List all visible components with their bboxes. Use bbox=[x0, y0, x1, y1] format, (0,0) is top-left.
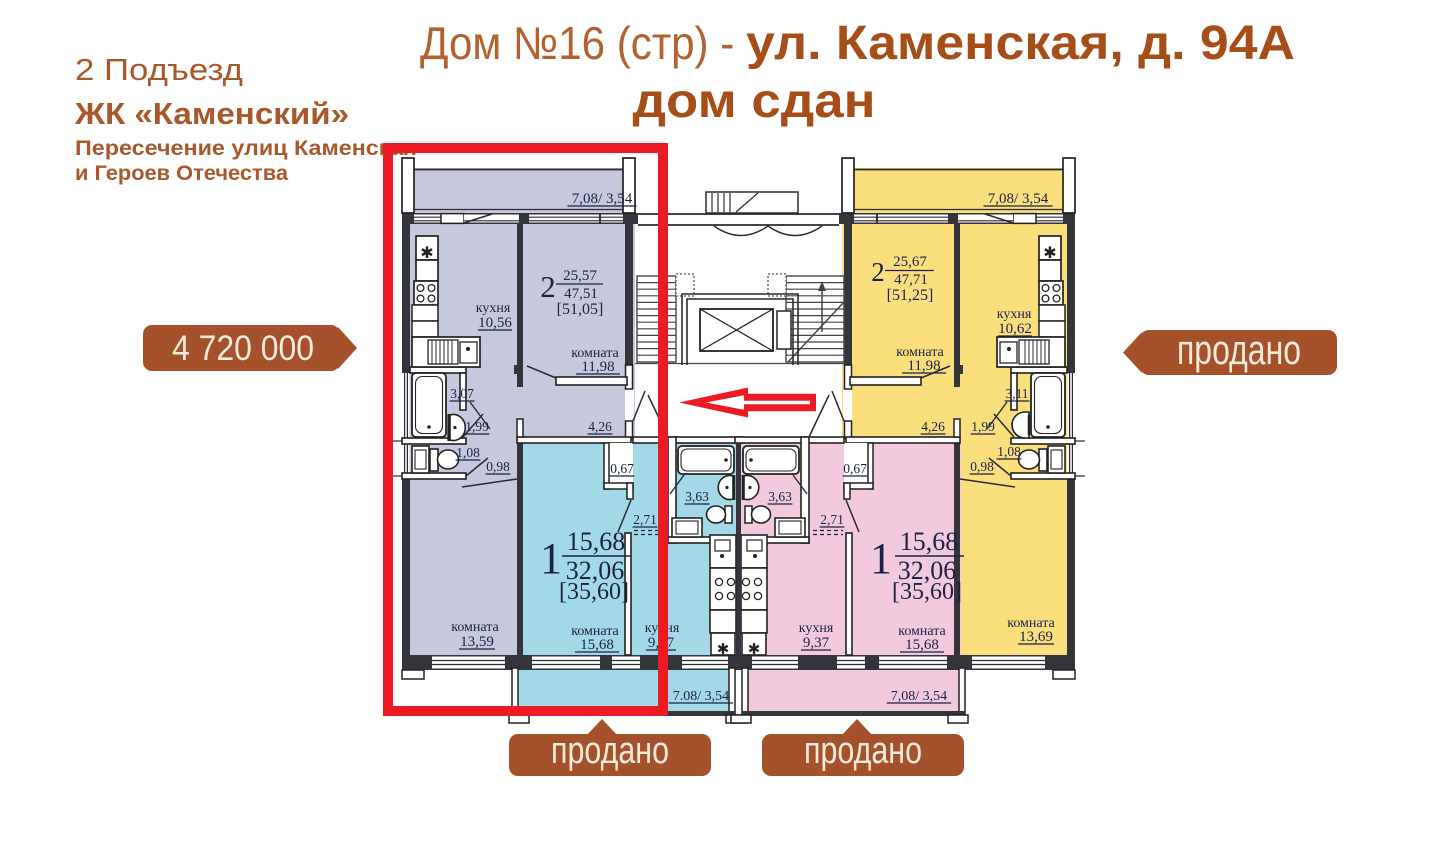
svg-text:ЖК «Каменский»: ЖК «Каменский» bbox=[74, 96, 349, 131]
svg-text:25,67: 25,67 bbox=[893, 254, 927, 270]
svg-text:10,62: 10,62 bbox=[998, 321, 1032, 337]
svg-text:кухня: кухня bbox=[476, 301, 511, 316]
svg-text:комната: комната bbox=[451, 620, 499, 635]
svg-text:продано: продано bbox=[1177, 326, 1301, 373]
svg-text:15,68: 15,68 bbox=[905, 637, 939, 653]
svg-text:дом сдан: дом сдан bbox=[633, 75, 876, 128]
svg-text:[35,60]: [35,60] bbox=[892, 579, 962, 605]
svg-text:✱: ✱ bbox=[748, 642, 761, 658]
svg-text:2,71: 2,71 bbox=[820, 512, 844, 527]
svg-text:11,98: 11,98 bbox=[581, 359, 614, 375]
svg-text:2,71: 2,71 bbox=[633, 512, 657, 527]
svg-text:47,71: 47,71 bbox=[894, 272, 928, 288]
svg-text:15,68: 15,68 bbox=[567, 527, 626, 556]
svg-text:7,08/ 3,54: 7,08/ 3,54 bbox=[891, 689, 947, 704]
svg-text:0,98: 0,98 bbox=[970, 459, 994, 474]
svg-text:продано: продано bbox=[551, 730, 669, 772]
svg-text:Дом №16 (стр) - ул. Каменская,: Дом №16 (стр) - ул. Каменская, д. 94А bbox=[420, 17, 1295, 70]
svg-text:1,99: 1,99 bbox=[465, 419, 489, 434]
svg-text:и Героев Отечества: и Героев Отечества bbox=[75, 161, 289, 185]
svg-text:7,08/ 3,54: 7,08/ 3,54 bbox=[988, 191, 1049, 207]
svg-text:кухня: кухня bbox=[799, 621, 834, 636]
svg-text:[35,60]: [35,60] bbox=[559, 579, 629, 605]
svg-text:2 Подъезд: 2 Подъезд bbox=[75, 52, 243, 87]
svg-text:3,11: 3,11 bbox=[1005, 386, 1028, 401]
svg-text:продано: продано bbox=[804, 730, 922, 772]
svg-text:✱: ✱ bbox=[717, 642, 730, 658]
svg-text:25,57: 25,57 bbox=[563, 268, 597, 284]
svg-text:2: 2 bbox=[871, 257, 885, 287]
svg-text:13,59: 13,59 bbox=[460, 634, 494, 650]
svg-text:3,07: 3,07 bbox=[450, 386, 474, 401]
svg-text:1,99: 1,99 bbox=[971, 419, 995, 434]
svg-text:3,63: 3,63 bbox=[768, 489, 792, 504]
svg-text:1: 1 bbox=[540, 534, 562, 583]
svg-text:[51,25]: [51,25] bbox=[887, 287, 934, 304]
svg-text:4,26: 4,26 bbox=[588, 419, 612, 434]
svg-text:9,37: 9,37 bbox=[803, 635, 830, 651]
svg-text:1,08: 1,08 bbox=[456, 445, 480, 460]
svg-text:1: 1 bbox=[870, 534, 892, 583]
svg-text:7,08/ 3,54: 7,08/ 3,54 bbox=[572, 191, 633, 207]
svg-text:2: 2 bbox=[540, 269, 556, 304]
svg-text:7.08/ 3,54: 7.08/ 3,54 bbox=[673, 689, 729, 704]
svg-text:Пересечение улиц Каменская: Пересечение улиц Каменская bbox=[75, 136, 417, 160]
svg-text:11,98: 11,98 bbox=[907, 358, 940, 374]
svg-text:10,56: 10,56 bbox=[478, 315, 512, 331]
svg-text:[51,05]: [51,05] bbox=[557, 301, 604, 318]
svg-text:0,98: 0,98 bbox=[486, 459, 510, 474]
svg-text:15,68: 15,68 bbox=[580, 637, 614, 653]
svg-text:0,67: 0,67 bbox=[610, 461, 634, 476]
svg-text:13,69: 13,69 bbox=[1019, 629, 1053, 645]
svg-text:0,67: 0,67 bbox=[843, 461, 867, 476]
svg-text:47,51: 47,51 bbox=[564, 286, 598, 302]
svg-text:4 720 000: 4 720 000 bbox=[172, 329, 314, 368]
svg-text:3,63: 3,63 bbox=[685, 489, 709, 504]
svg-text:15,68: 15,68 bbox=[900, 527, 959, 556]
svg-text:кухня: кухня bbox=[997, 307, 1032, 322]
svg-text:1,08: 1,08 bbox=[997, 444, 1021, 459]
svg-text:4,26: 4,26 bbox=[921, 419, 945, 434]
